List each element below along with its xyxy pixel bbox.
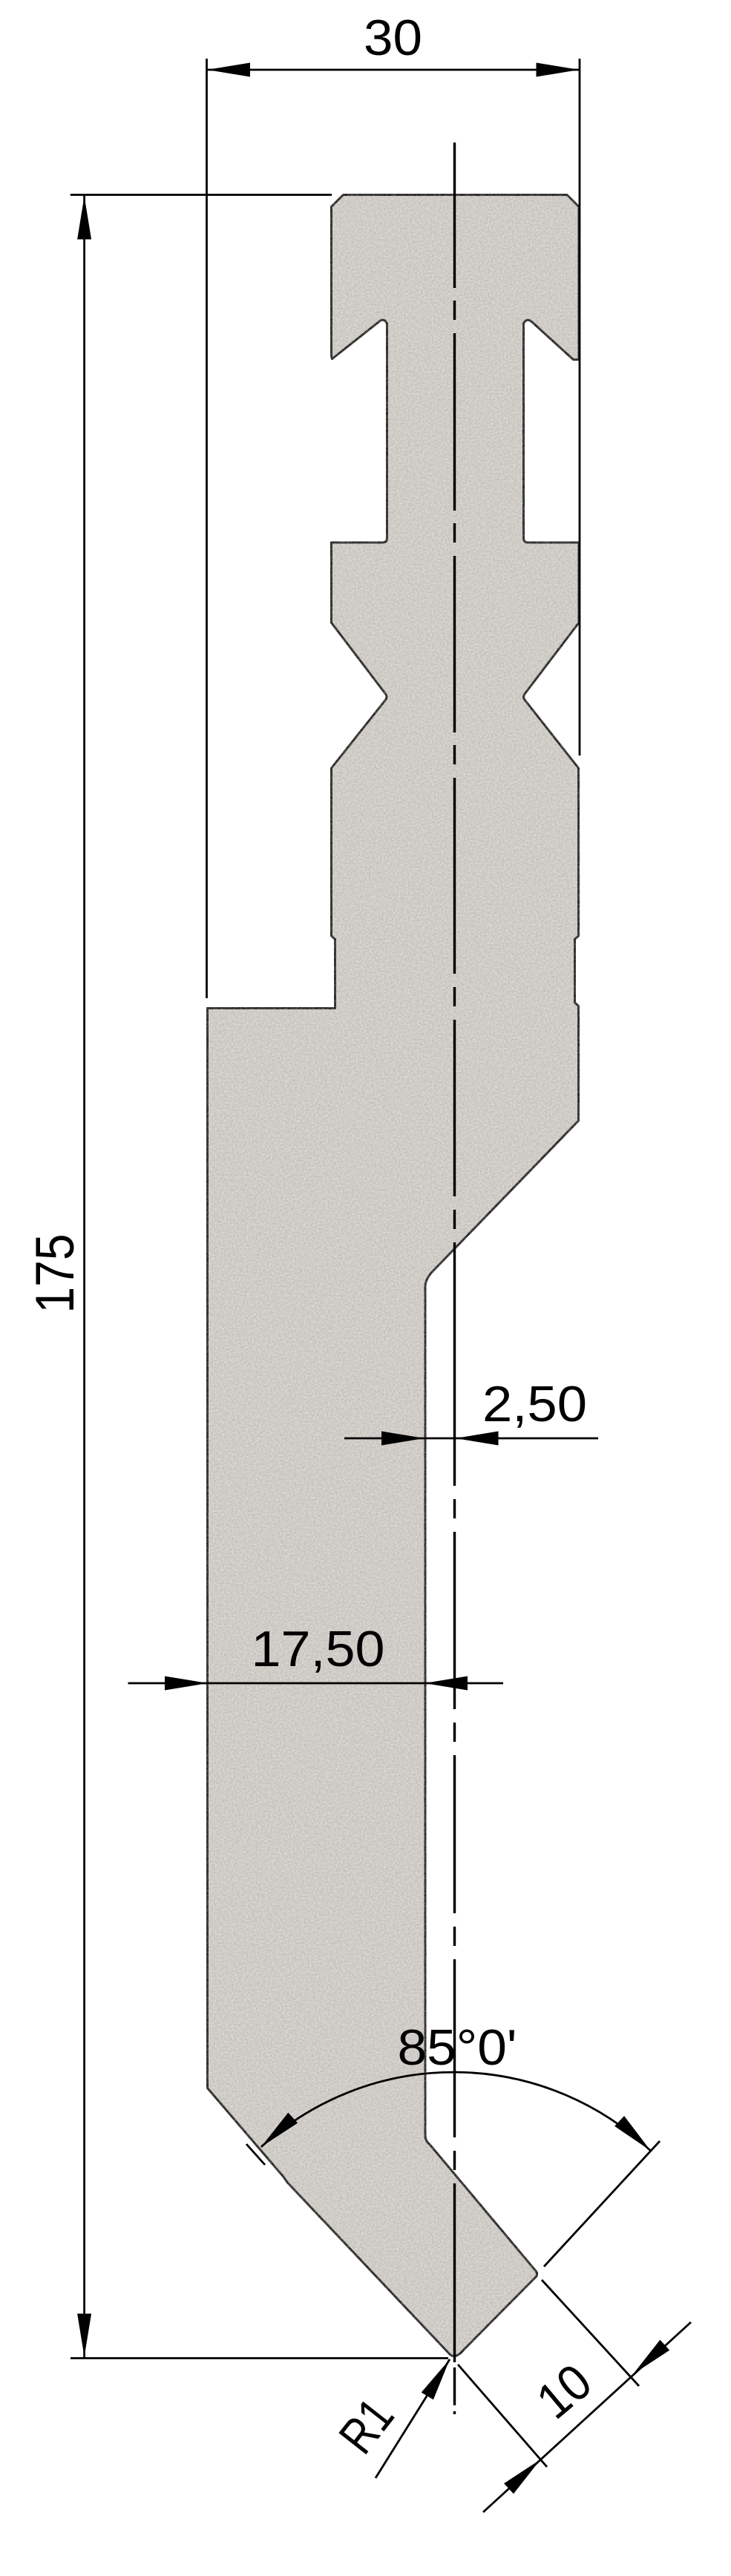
svg-text:30: 30 xyxy=(364,10,422,66)
svg-text:175: 175 xyxy=(25,1234,85,1314)
svg-text:2,50: 2,50 xyxy=(482,1376,587,1432)
svg-text:85°0': 85°0' xyxy=(398,2019,517,2076)
svg-text:17,50: 17,50 xyxy=(252,1621,385,1677)
